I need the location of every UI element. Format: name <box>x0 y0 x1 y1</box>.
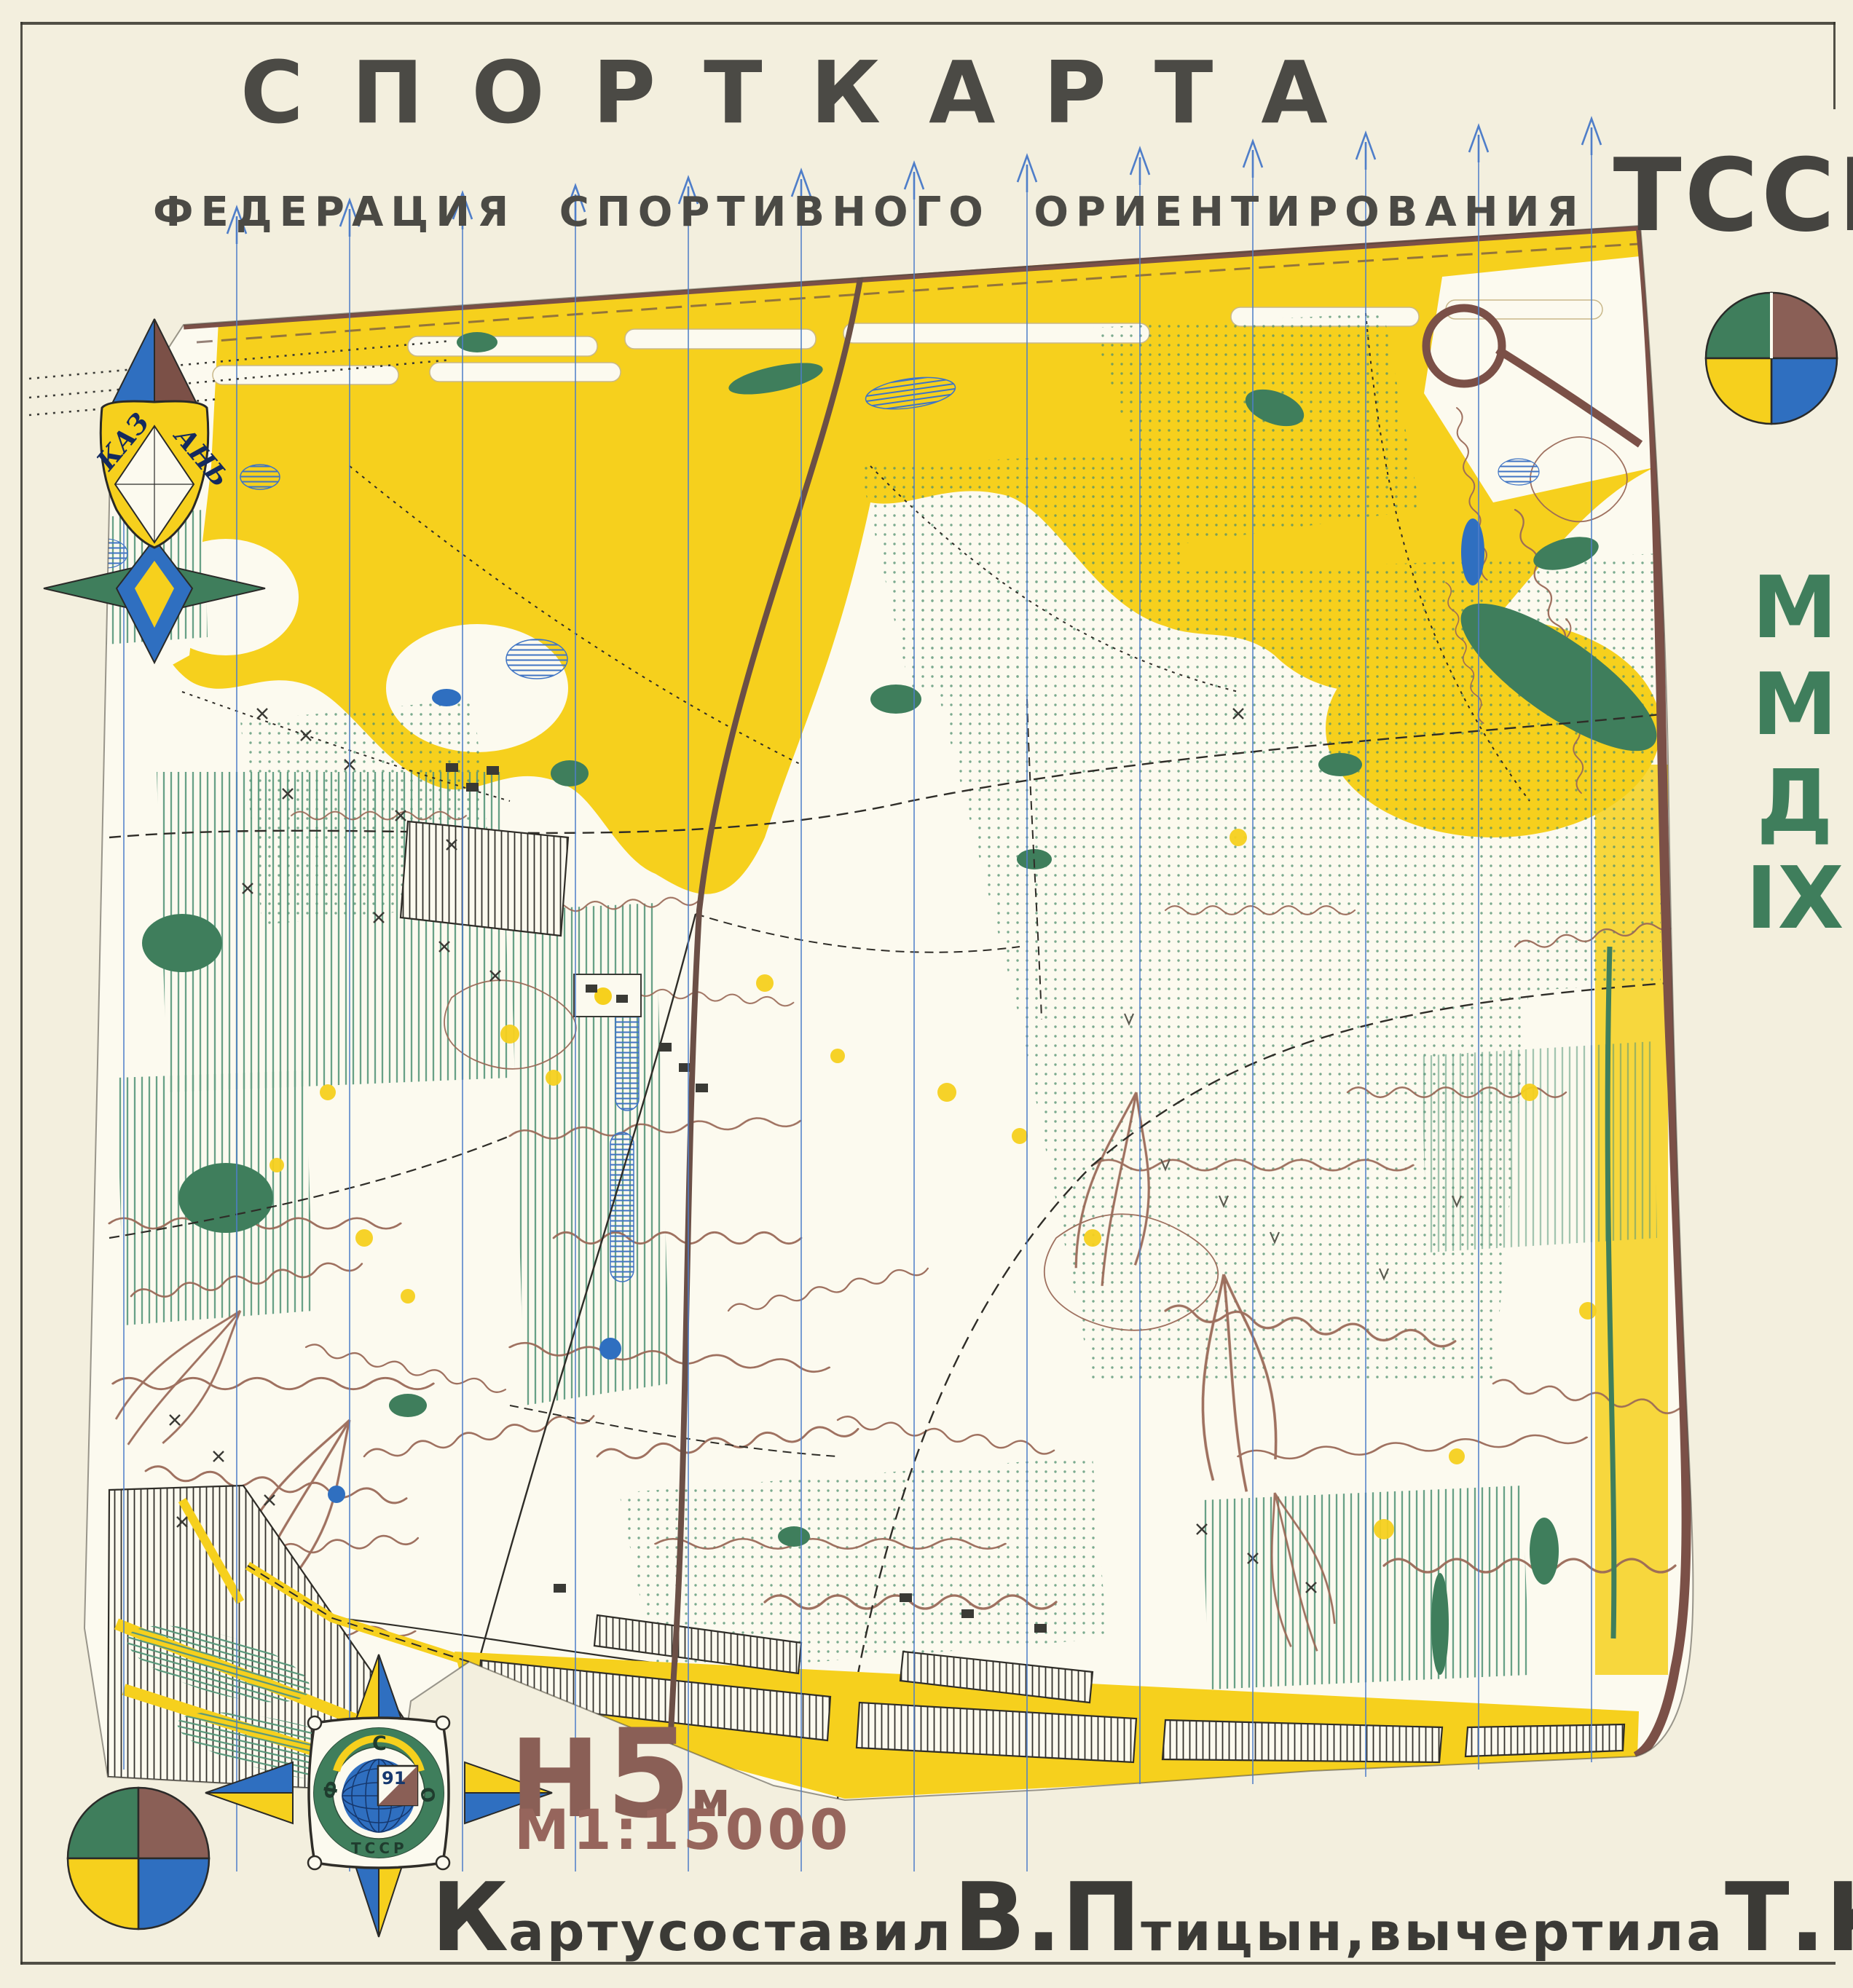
side-label-letter: IX <box>1736 850 1853 947</box>
header-subtitle-row: ФЕДЕРАЦИЯ СПОРТИВНОГО ОРИЕНТИРОВАНИЯ ТСС… <box>153 146 1777 246</box>
side-label-letter: М <box>1736 559 1853 656</box>
side-label-letter: М <box>1736 656 1853 753</box>
frame-top-line <box>20 22 1836 25</box>
credits-line: КартусоставилВ.Птицын,вычертилаТ.Кушнеро… <box>431 1870 1852 1965</box>
frame-bottom-line <box>20 1962 1836 1965</box>
compass-west-label: Ф <box>319 1779 343 1800</box>
compass-north-label: С <box>372 1732 387 1755</box>
map-scale-ratio: М1:15000 <box>514 1797 851 1862</box>
compass-bottom-label: ТССР <box>351 1839 408 1857</box>
credits-word: вычертила <box>1368 1901 1725 1963</box>
orienteering-map-canvas: КАЗ АНЬ <box>0 0 1853 1988</box>
frame-left-line <box>20 22 23 1965</box>
credits-word: составил <box>658 1901 953 1963</box>
org-abbreviation: ТССР <box>1613 146 1853 246</box>
credits-drafter-initials: Т.К <box>1725 1870 1853 1965</box>
side-label-mmd-ix: М М Д IX <box>1736 559 1853 947</box>
compass-year: 91 <box>382 1768 406 1788</box>
federation-subtitle: ФЕДЕРАЦИЯ СПОРТИВНОГО ОРИЕНТИРОВАНИЯ <box>153 189 1586 246</box>
side-label-letter: Д <box>1736 753 1853 850</box>
frame-right-stub <box>1833 22 1836 109</box>
quartered-circle-bottom-left <box>68 1788 209 1929</box>
credits-author-initials: В.П <box>953 1870 1141 1965</box>
map-title: СПОРТКАРТА <box>240 42 1376 143</box>
credits-initial: К <box>431 1870 508 1965</box>
quartered-circle-top-right <box>1706 293 1837 424</box>
